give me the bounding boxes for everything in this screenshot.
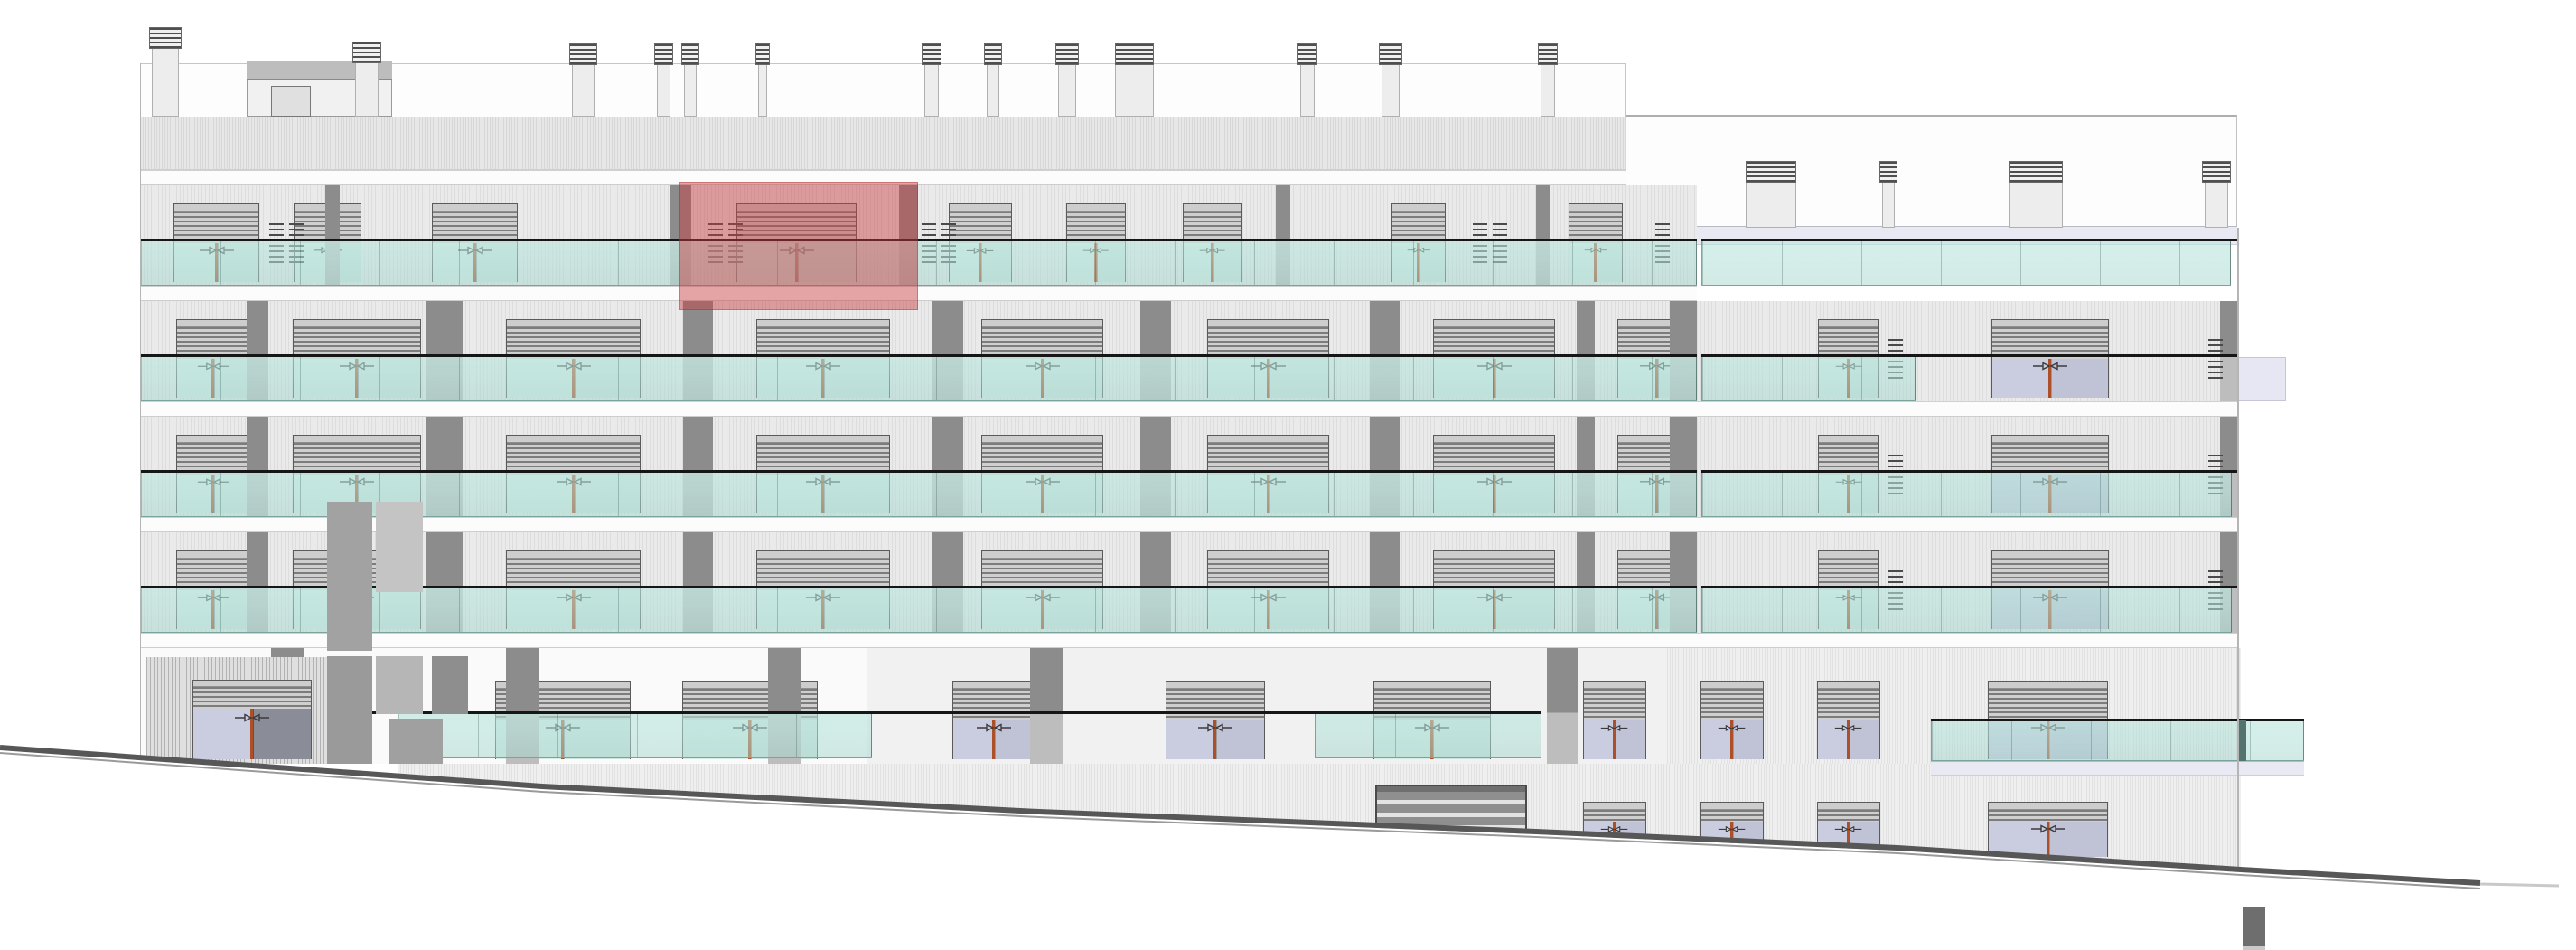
window-pane bbox=[1850, 822, 1879, 857]
stair-bulkhead-door bbox=[271, 86, 311, 117]
stair-core-panel bbox=[376, 502, 423, 592]
entrance-door bbox=[192, 680, 312, 759]
balustrade-handrail bbox=[140, 239, 1697, 241]
window-glazing bbox=[1584, 720, 1645, 759]
balustrade-handrail bbox=[1701, 470, 2237, 473]
chimney-cap bbox=[922, 43, 941, 65]
chimney-cap bbox=[681, 43, 699, 65]
selected-unit-highlight[interactable] bbox=[679, 182, 918, 310]
balcony-glass-balustrade bbox=[398, 714, 872, 758]
balcony-glass-balustrade bbox=[140, 588, 1697, 633]
pilaster bbox=[1030, 648, 1063, 764]
window-ground bbox=[952, 681, 1035, 759]
garage-door bbox=[1375, 785, 1527, 861]
chimney-cap bbox=[1115, 43, 1154, 65]
chimney-cap bbox=[1746, 161, 1796, 183]
roller-shutter bbox=[1818, 689, 1879, 720]
roller-shutter bbox=[1584, 689, 1645, 720]
window-glazing bbox=[1584, 822, 1645, 857]
section-cut-post-foot bbox=[2243, 946, 2265, 950]
roof-parapet-textured-band bbox=[140, 117, 1626, 170]
right-wing-parapet bbox=[1626, 115, 2237, 228]
window-glazing bbox=[1992, 359, 2108, 398]
window-glazing bbox=[1701, 720, 1763, 759]
chimney-cap bbox=[1055, 43, 1079, 65]
floor-slab-band bbox=[140, 286, 1697, 301]
roller-shutter-cap bbox=[1392, 204, 1445, 212]
pilaster bbox=[1547, 648, 1578, 764]
window-pane bbox=[1733, 720, 1763, 759]
window-glazing bbox=[1701, 822, 1763, 857]
balustrade-handrail bbox=[1701, 354, 2237, 357]
roller-shutter-cap bbox=[1992, 551, 2108, 559]
roller-shutter-cap bbox=[507, 551, 640, 559]
chimney-shaft bbox=[758, 65, 767, 117]
window-pane bbox=[1818, 822, 1847, 857]
window-pane bbox=[1166, 720, 1213, 759]
roller-shutter-cap bbox=[433, 204, 517, 212]
chimney-cap bbox=[569, 43, 597, 65]
basement-wall bbox=[398, 764, 2241, 886]
window-glazing bbox=[1166, 720, 1264, 759]
roller-shutter-cap bbox=[1818, 682, 1879, 689]
balustrade-handrail bbox=[1701, 586, 2237, 588]
chimney-cap bbox=[1297, 43, 1317, 65]
window-basement bbox=[1988, 802, 2108, 857]
roller-shutter bbox=[1166, 689, 1264, 720]
garage-door-slat bbox=[1377, 817, 1525, 825]
window-pane bbox=[1850, 720, 1879, 759]
window-pane bbox=[995, 720, 1035, 759]
balcony-glass-balustrade bbox=[1701, 357, 1916, 401]
balcony-glass-balustrade bbox=[1931, 720, 2304, 761]
roller-shutter-cap bbox=[193, 681, 311, 687]
roller-shutter-cap bbox=[950, 204, 1011, 212]
window-pane bbox=[1818, 720, 1847, 759]
balustrade-handrail bbox=[140, 470, 1697, 473]
window-glazing bbox=[953, 720, 1034, 759]
chimney-shaft bbox=[657, 65, 670, 117]
window-pane bbox=[1992, 359, 2048, 398]
roller-shutter bbox=[1701, 689, 1763, 720]
roller-shutter-cap bbox=[177, 320, 248, 327]
roller-shutter-cap bbox=[1208, 320, 1328, 327]
roller-shutter-cap bbox=[1166, 682, 1264, 689]
garage-door-slat bbox=[1377, 804, 1525, 813]
window-glazing bbox=[1818, 720, 1879, 759]
roller-shutter-cap bbox=[1989, 682, 2107, 689]
building-edge bbox=[140, 63, 141, 765]
chimney-shaft bbox=[1300, 65, 1315, 117]
chimney-shaft bbox=[924, 65, 939, 117]
roller-shutter-cap bbox=[982, 436, 1102, 443]
roller-shutter-cap bbox=[1584, 803, 1645, 810]
chimney-shaft bbox=[2205, 183, 2228, 228]
roller-shutter-cap bbox=[1569, 204, 1622, 212]
roller-shutter-cap bbox=[507, 436, 640, 443]
window-ground bbox=[1817, 681, 1880, 759]
chimney-shaft bbox=[1058, 65, 1076, 117]
window-basement bbox=[1817, 802, 1880, 857]
stair-core-panel bbox=[327, 502, 372, 651]
roller-shutter bbox=[193, 687, 311, 709]
chimney-cap bbox=[352, 42, 381, 63]
chimney-shaft bbox=[152, 49, 179, 117]
chimney-shaft bbox=[1882, 183, 1895, 228]
balustrade-handrail bbox=[140, 354, 1697, 357]
window-pane bbox=[1733, 822, 1763, 857]
roller-shutter-cap bbox=[177, 551, 248, 559]
stair-core-panel bbox=[376, 656, 423, 714]
stair-core-panel bbox=[327, 656, 372, 764]
chimney-cap bbox=[1538, 43, 1558, 65]
elevation-drawing bbox=[0, 0, 2576, 950]
roller-shutter-cap bbox=[757, 436, 889, 443]
window-glazing bbox=[1989, 822, 2107, 857]
balcony-glass-balustrade bbox=[140, 357, 1697, 401]
chimney-shaft bbox=[1541, 65, 1555, 117]
roller-shutter-cap bbox=[1818, 803, 1879, 810]
window-ground bbox=[1166, 681, 1265, 759]
garage-door-slat bbox=[1377, 792, 1525, 800]
chimney-shaft bbox=[987, 65, 999, 117]
roller-shutter-cap bbox=[1184, 204, 1241, 212]
roller-shutter-cap bbox=[1584, 682, 1645, 689]
roller-shutter-cap bbox=[1989, 803, 2107, 810]
window-pane bbox=[1616, 822, 1645, 857]
window-ground bbox=[1700, 681, 1764, 759]
balcony-glass-balustrade bbox=[1701, 588, 2232, 633]
balcony-slab bbox=[1931, 761, 2304, 776]
roller-shutter-cap bbox=[174, 204, 258, 212]
door-solid-leaf bbox=[253, 709, 311, 759]
roller-shutter bbox=[1989, 810, 2107, 822]
roof-slab-band bbox=[140, 170, 1697, 185]
roller-shutter-cap bbox=[1992, 436, 2108, 443]
roller-shutter bbox=[953, 689, 1034, 720]
roller-shutter-cap bbox=[953, 682, 1034, 689]
balustrade-handrail bbox=[1701, 239, 2237, 241]
chimney-cap bbox=[2202, 161, 2231, 183]
window-ground bbox=[1583, 681, 1646, 759]
chimney-cap bbox=[2009, 161, 2063, 183]
window-pane bbox=[2049, 822, 2108, 857]
window-pane bbox=[1616, 720, 1645, 759]
window-pane bbox=[1701, 822, 1730, 857]
window-basement bbox=[1700, 802, 1764, 857]
chimney-cap bbox=[1879, 161, 1897, 183]
roller-shutter-cap bbox=[1819, 320, 1878, 327]
balcony-glass-balustrade bbox=[1701, 241, 2231, 286]
window-glazing bbox=[1818, 822, 1879, 857]
roller-shutter bbox=[1701, 810, 1763, 822]
balustrade-handrail bbox=[140, 586, 1697, 588]
chimney-cap bbox=[755, 43, 770, 65]
chimney-cap bbox=[984, 43, 1002, 65]
chimney-shaft bbox=[1746, 183, 1796, 228]
window-pane bbox=[1216, 720, 1264, 759]
chimney-shaft bbox=[684, 65, 697, 117]
building-edge bbox=[2237, 228, 2239, 871]
roller-shutter-cap bbox=[1434, 551, 1554, 559]
floor-slab-band bbox=[140, 401, 2237, 417]
chimney-shaft bbox=[572, 65, 595, 117]
window-pane bbox=[1584, 822, 1613, 857]
roller-shutter-cap bbox=[177, 436, 248, 443]
roller-shutter-cap bbox=[1434, 436, 1554, 443]
roller-shutter-cap bbox=[757, 320, 889, 327]
window-pane bbox=[2051, 359, 2108, 398]
roller-shutter-cap bbox=[1067, 204, 1125, 212]
chimney-cap bbox=[149, 27, 182, 49]
section-cut-post bbox=[2243, 907, 2265, 946]
roller-shutter-cap bbox=[1819, 551, 1878, 559]
vent-louvre-icon bbox=[2208, 339, 2223, 379]
floor-slab-band bbox=[140, 633, 2237, 648]
chimney-shaft bbox=[2009, 183, 2063, 228]
roller-shutter-cap bbox=[507, 320, 640, 327]
roller-shutter-cap bbox=[757, 551, 889, 559]
roller-shutter-cap bbox=[1819, 436, 1878, 443]
roller-shutter bbox=[1584, 810, 1645, 822]
window-basement bbox=[1583, 802, 1646, 857]
roller-shutter-cap bbox=[1701, 682, 1763, 689]
roller-shutter bbox=[1818, 810, 1879, 822]
stair-core-panel bbox=[432, 656, 468, 714]
balcony-slab-profile bbox=[2237, 357, 2286, 401]
roller-shutter-cap bbox=[982, 320, 1102, 327]
roller-shutter-cap bbox=[1208, 436, 1328, 443]
garage-door-slat bbox=[1377, 830, 1525, 838]
roller-shutter-cap bbox=[1434, 320, 1554, 327]
roller-shutter-cap bbox=[1992, 320, 2108, 327]
roller-shutter-cap bbox=[1701, 803, 1763, 810]
window-pane bbox=[1989, 822, 2047, 857]
window-floor4 bbox=[1991, 319, 2109, 398]
chimney-shaft bbox=[1382, 65, 1400, 117]
window-pane bbox=[953, 720, 992, 759]
roller-shutter-cap bbox=[1374, 682, 1490, 689]
balustrade-end-post bbox=[2238, 720, 2246, 761]
chimney-shaft bbox=[355, 63, 379, 117]
roller-shutter-cap bbox=[294, 320, 420, 327]
window-pane bbox=[1701, 720, 1730, 759]
roller-shutter-cap bbox=[294, 436, 420, 443]
entrance-glazing bbox=[193, 709, 311, 759]
stair-core-panel bbox=[389, 719, 443, 764]
door-glass-leaf bbox=[193, 709, 250, 759]
roller-shutter-cap bbox=[1208, 551, 1328, 559]
balustrade-handrail bbox=[1931, 719, 2304, 721]
roller-shutter bbox=[1989, 689, 2107, 720]
chimney-cap bbox=[1379, 43, 1402, 65]
balcony-glass-balustrade bbox=[1315, 714, 1541, 758]
balcony-glass-balustrade bbox=[140, 241, 1697, 286]
balcony-glass-balustrade bbox=[140, 473, 1697, 517]
floor-slab-band bbox=[140, 517, 2237, 532]
roller-shutter-cap bbox=[982, 551, 1102, 559]
balcony-glass-balustrade bbox=[1701, 473, 2232, 517]
window-pane bbox=[1584, 720, 1613, 759]
chimney-cap bbox=[654, 43, 673, 65]
chimney-shaft bbox=[1115, 65, 1154, 117]
